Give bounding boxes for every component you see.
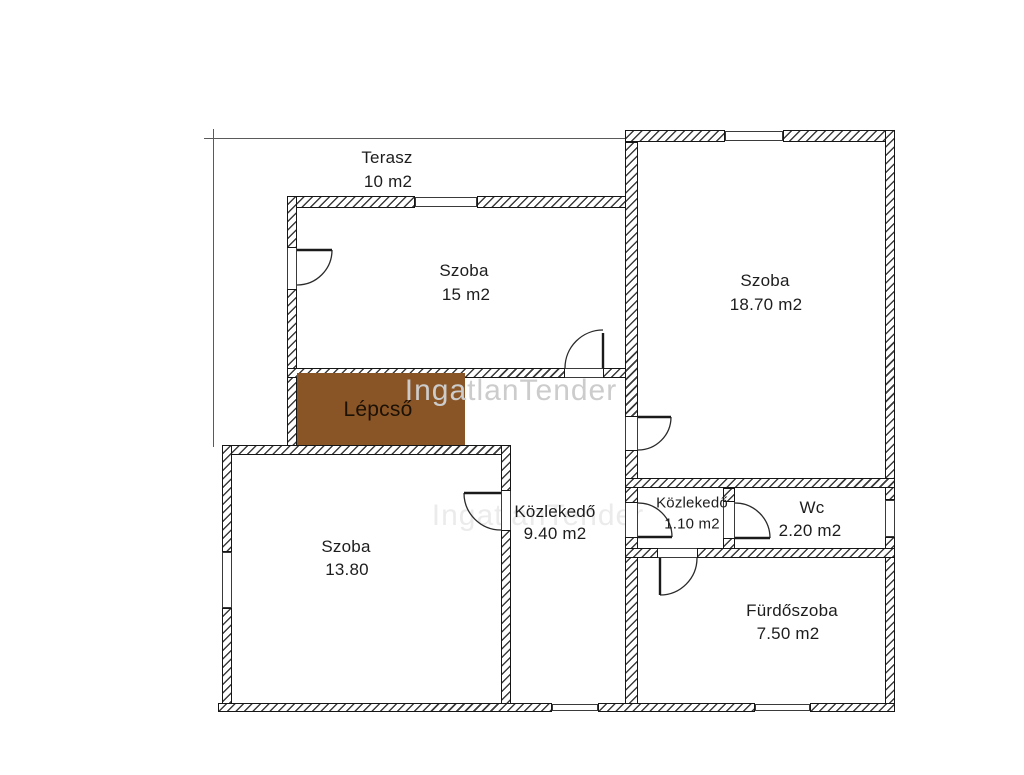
room-label-szoba1380-name: Szoba (321, 537, 370, 557)
room-label-szoba15-name: Szoba (439, 261, 488, 281)
room-label-szoba1870-name: Szoba (740, 271, 789, 291)
door-arc (638, 417, 671, 450)
room-label-kozlekedo940-name: Közlekedő (514, 502, 595, 522)
door-arc (297, 250, 332, 285)
door-arc (565, 330, 603, 368)
room-label-wc-area: 2.20 m2 (779, 521, 842, 541)
room-label-kozlekedo110-area: 1.10 m2 (664, 516, 720, 533)
room-label-szoba1380-area: 13.80 (325, 560, 369, 580)
room-label-wc-name: Wc (800, 498, 825, 518)
room-label-lepcso: Lépcső (344, 398, 413, 422)
room-label-furdoszoba-name: Fürdőszoba (746, 601, 838, 621)
watermark: IngatlanTender (405, 374, 618, 408)
door-arc (735, 503, 770, 538)
room-label-furdoszoba-area: 7.50 m2 (757, 624, 820, 644)
room-label-szoba15-area: 15 m2 (442, 285, 490, 305)
room-label-kozlekedo940-area: 9.40 m2 (524, 524, 587, 544)
room-label-szoba1870-area: 18.70 m2 (730, 295, 802, 315)
room-label-kozlekedo110-name: Közlekedő (656, 495, 728, 512)
room-label-terasz-area: 10 m2 (364, 172, 412, 192)
door-arc (660, 558, 697, 595)
door-arc (464, 493, 501, 530)
room-label-terasz-name: Terasz (361, 148, 412, 168)
floor-plan: IngatlanTender IngatlanTender Terasz 10 … (0, 0, 1024, 775)
